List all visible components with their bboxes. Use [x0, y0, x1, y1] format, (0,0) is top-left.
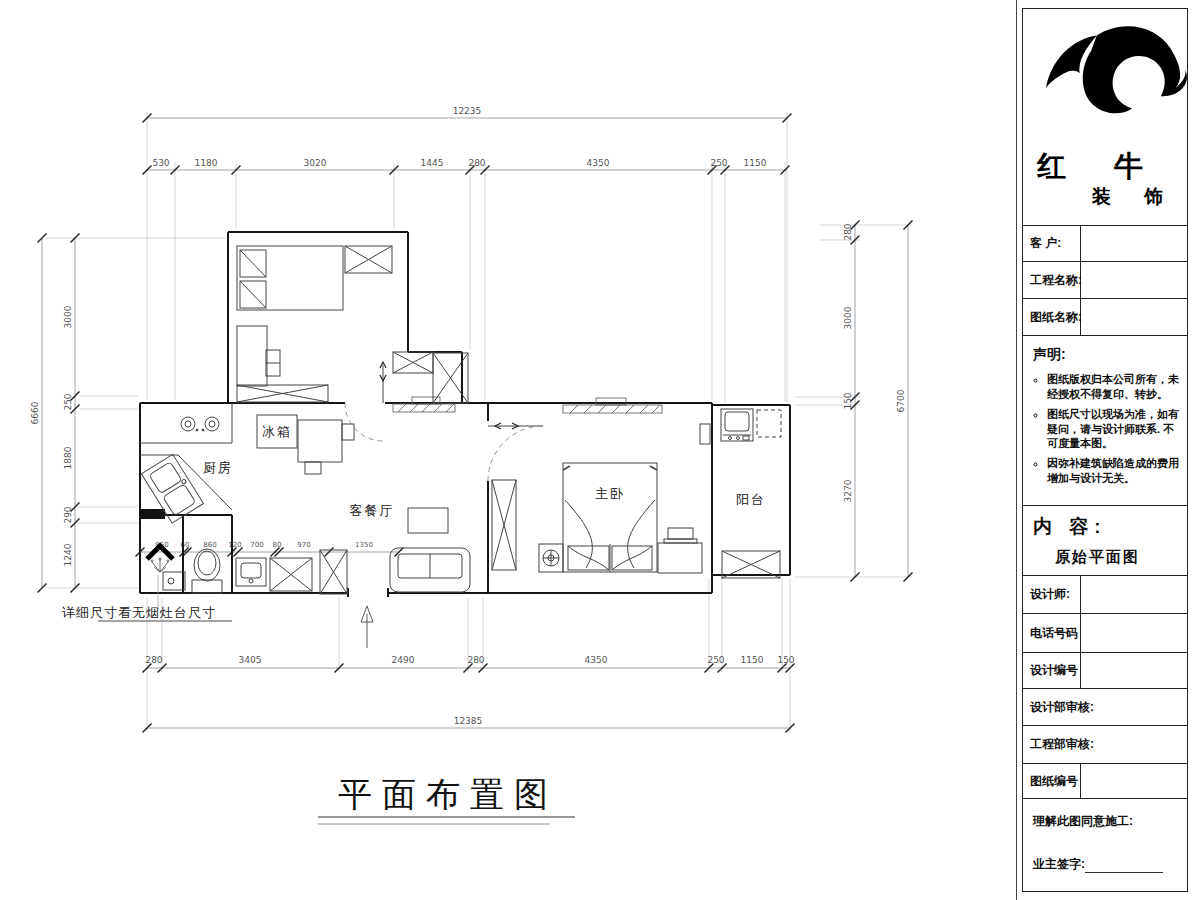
title-block: 红 牛 装 饰 客 户: 工程名称: 图纸名称: 声明: 图纸版权归本公司所有，…: [1022, 8, 1188, 892]
dim-label: 700: [250, 541, 263, 549]
dim-label: 80: [273, 541, 282, 549]
dim-label: 280: [468, 158, 485, 168]
plan-note: 详细尺寸看无烟灶台尺寸: [62, 605, 216, 620]
field-label: 设计编号: [1023, 653, 1081, 688]
toilet-tank: [192, 580, 222, 593]
dim-label: 280: [467, 655, 484, 665]
room-label-living: 客餐厅: [350, 503, 395, 518]
dim-label: 1150: [741, 655, 764, 665]
dim-label: 290: [63, 506, 73, 523]
field-label: 工程名称:: [1023, 262, 1081, 298]
field-design-review: 设计部审核:: [1023, 689, 1187, 726]
plan-title: 平面布置图: [338, 774, 558, 814]
dim-label: 970: [297, 541, 310, 549]
statement-title: 声明:: [1033, 346, 1179, 364]
dim-label: 4350: [585, 655, 608, 665]
dim-label: 150: [843, 392, 853, 409]
dim-label: 6660: [30, 401, 40, 424]
bathroom-fixtures: [147, 546, 347, 610]
dim-label: 1150: [744, 158, 767, 168]
doors: [345, 362, 543, 481]
company-logo: 红 牛 装 饰: [1023, 9, 1187, 226]
dim-label: 250: [63, 393, 73, 410]
side-table: [658, 543, 702, 573]
room-label-fridge: 冰箱: [262, 424, 292, 439]
brand-suffix: 装 饰: [1092, 184, 1177, 210]
dim-label: 150: [777, 655, 794, 665]
field-label: 设计师:: [1023, 576, 1081, 613]
dim-label: 1180: [195, 158, 218, 168]
dim-label: 60: [181, 541, 190, 549]
stove-burner: [205, 417, 219, 431]
agree-label: 理解此图同意施工:: [1033, 813, 1187, 830]
upper-bedroom-furniture: [237, 246, 468, 403]
chair: [342, 424, 354, 440]
dim-label: 1350: [355, 541, 373, 549]
statement-item: 图纸尺寸以现场为准，如有疑问，请与设计师联系. 不可度量本图。: [1047, 407, 1179, 452]
dining-table: [298, 420, 342, 462]
ac-unit: [700, 424, 710, 444]
statement-item: 图纸版权归本公司所有，未经授权不得复印、转抄。: [1047, 372, 1179, 402]
owner-signature-field[interactable]: [1085, 860, 1163, 873]
field-project-name: 工程名称:: [1023, 262, 1187, 299]
sheet-divider: [1016, 0, 1017, 900]
dim-label: 860: [203, 541, 216, 549]
brand-name: 红 牛: [1037, 147, 1163, 187]
entry-arrow-icon: [361, 606, 373, 648]
stool: [668, 528, 693, 539]
dim-label: 250: [710, 158, 727, 168]
wall-pier: [140, 509, 165, 519]
dim-label: 250: [707, 655, 724, 665]
statement-list: 图纸版权归本公司所有，未经授权不得复印、转抄。 图纸尺寸以现场为准，如有疑问，请…: [1033, 372, 1179, 486]
field-design-no: 设计编号: [1023, 653, 1187, 689]
dim-label: 3270: [843, 479, 853, 502]
dim-label: 3405: [239, 655, 262, 665]
plant-icon: [151, 558, 169, 572]
living-furniture: [390, 508, 470, 592]
room-label-bedroom: 主卧: [595, 486, 625, 501]
field-customer: 客 户:: [1023, 226, 1187, 262]
field-label: 图纸名称:: [1023, 299, 1081, 335]
chair: [305, 462, 321, 474]
dim-label: 12235: [453, 106, 482, 116]
kitchen-furniture: [140, 403, 354, 523]
dim-label: 12385: [454, 716, 483, 726]
drawing-sheet: 12235 530 1180 3020 1445 280 4350 250 11…: [0, 0, 1200, 900]
dim-label: 4350: [587, 158, 610, 168]
dim-label: 120: [228, 541, 241, 549]
field-label: 客 户:: [1023, 226, 1081, 261]
field-eng-review: 工程部审核:: [1023, 726, 1187, 764]
field-label: 设计部审核:: [1023, 699, 1094, 716]
owner-sign-label: 业主签字:: [1033, 857, 1085, 871]
dim-label: 1880: [63, 446, 73, 469]
field-phone: 电话号码: [1023, 614, 1187, 653]
bed-small: [237, 246, 343, 310]
content-value: 原始平面图: [1055, 548, 1187, 567]
field-drawing-no: 图纸编号: [1023, 764, 1187, 799]
extension-lines: [46, 112, 912, 732]
dimension-lines: [42, 118, 908, 728]
content-label: 内 容:: [1033, 514, 1187, 540]
dim-label: 3020: [304, 158, 327, 168]
signature-block: 理解此图同意施工: 业主签字:: [1023, 799, 1187, 891]
dim-label: 1240: [63, 543, 73, 566]
dim-label: 530: [152, 158, 169, 168]
content-block: 内 容: 原始平面图: [1023, 506, 1187, 576]
dim-label: 6700: [896, 389, 906, 412]
dim-label: 280: [145, 655, 162, 665]
shower-icon: [147, 546, 173, 559]
desk: [237, 326, 267, 386]
room-label-balcony: 阳台: [736, 492, 766, 507]
room-labels: 厨房 冰箱 客餐厅 主卧 阳台: [203, 424, 766, 518]
field-label: 工程部审核:: [1023, 736, 1094, 753]
dim-label: 1445: [421, 158, 444, 168]
reserved-area: [757, 410, 781, 437]
field-designer: 设计师:: [1023, 576, 1187, 614]
field-drawing-name: 图纸名称:: [1023, 299, 1187, 336]
dim-label: 3000: [843, 306, 853, 329]
field-label: 电话号码: [1023, 614, 1081, 652]
counter: [140, 403, 232, 443]
statement-item: 因弥补建筑缺陷造成的费用增加与设计无关。: [1047, 456, 1179, 486]
dim-label: 3000: [63, 305, 73, 328]
field-label: 图纸编号: [1023, 764, 1081, 798]
room-label-kitchen: 厨房: [203, 460, 233, 475]
floor-plan: 12235 530 1180 3020 1445 280 4350 250 11…: [0, 0, 1014, 900]
stove-burner: [181, 417, 195, 431]
bull-logo-icon: [1023, 9, 1187, 139]
statement-block: 声明: 图纸版权归本公司所有，未经授权不得复印、转抄。 图纸尺寸以现场为准，如有…: [1023, 336, 1187, 506]
dim-label: 2490: [392, 655, 415, 665]
dim-label: 280: [843, 223, 853, 240]
coffee-table: [408, 508, 448, 533]
